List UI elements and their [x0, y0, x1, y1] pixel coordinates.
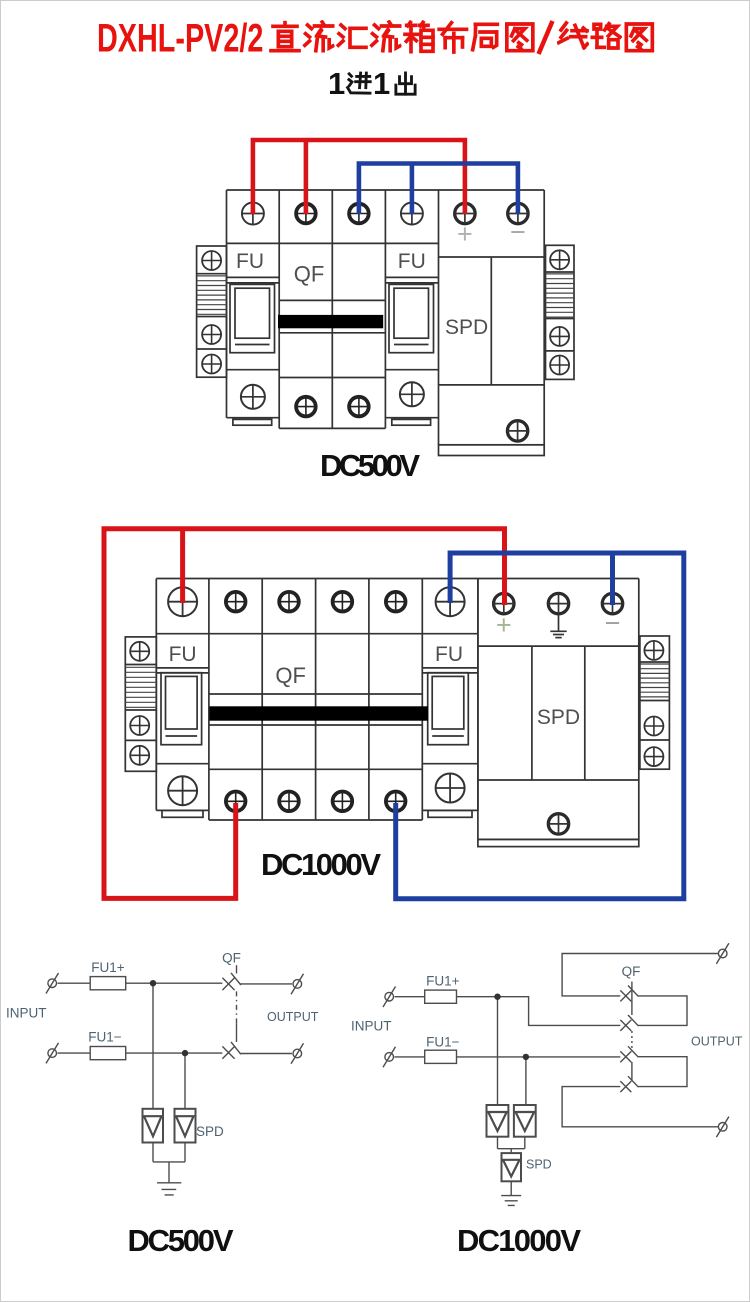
svg-text:DC1000V: DC1000V	[457, 1223, 581, 1258]
svg-text:+: +	[457, 219, 473, 249]
svg-text:OUTPUT: OUTPUT	[267, 1010, 319, 1024]
svg-text:DXHL-PV2/2: DXHL-PV2/2	[97, 16, 263, 61]
svg-text:SPD: SPD	[537, 706, 580, 729]
svg-text:DC500V: DC500V	[320, 448, 420, 483]
svg-text:FU: FU	[398, 250, 426, 273]
svg-text:−: −	[605, 608, 621, 638]
svg-text:DC1000V: DC1000V	[261, 847, 381, 882]
svg-text:SPD: SPD	[196, 1124, 224, 1139]
svg-text:OUTPUT: OUTPUT	[691, 1035, 743, 1049]
svg-text:SPD: SPD	[526, 1158, 552, 1172]
svg-text:FU1−: FU1−	[88, 1030, 122, 1045]
svg-text:QF: QF	[275, 663, 306, 688]
svg-text:1: 1	[373, 66, 390, 101]
svg-text:FU: FU	[169, 643, 197, 666]
svg-text:FU: FU	[236, 250, 264, 273]
svg-text:SPD: SPD	[445, 316, 488, 339]
svg-text:QF: QF	[294, 262, 325, 287]
svg-text:FU1−: FU1−	[426, 1035, 460, 1050]
svg-text:DC500V: DC500V	[128, 1223, 234, 1258]
svg-text:FU1+: FU1+	[426, 974, 460, 989]
svg-text:QF: QF	[622, 964, 641, 979]
svg-text:1: 1	[328, 66, 345, 101]
svg-text:INPUT: INPUT	[351, 1019, 392, 1034]
svg-text:INPUT: INPUT	[6, 1006, 47, 1021]
svg-text:−: −	[510, 217, 526, 247]
svg-text:FU1+: FU1+	[91, 960, 125, 975]
svg-text:FU: FU	[435, 643, 463, 666]
svg-text:QF: QF	[222, 951, 241, 966]
svg-text:+: +	[496, 610, 512, 640]
